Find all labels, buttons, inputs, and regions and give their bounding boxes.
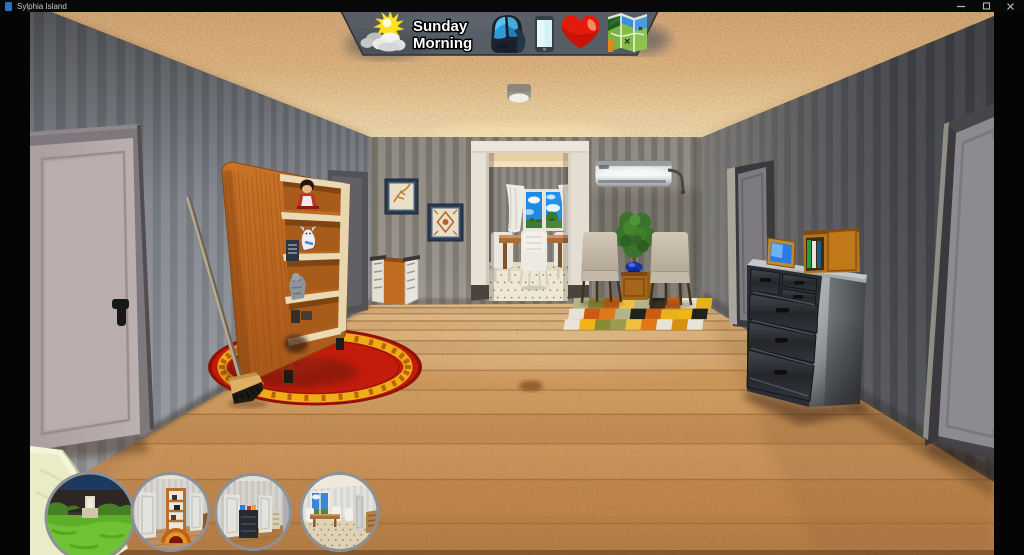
svg-text:Sunday: Sunday [413, 18, 468, 35]
svg-text:Morning: Morning [413, 35, 472, 52]
svg-text:Sylphia Island: Sylphia Island [17, 2, 67, 11]
